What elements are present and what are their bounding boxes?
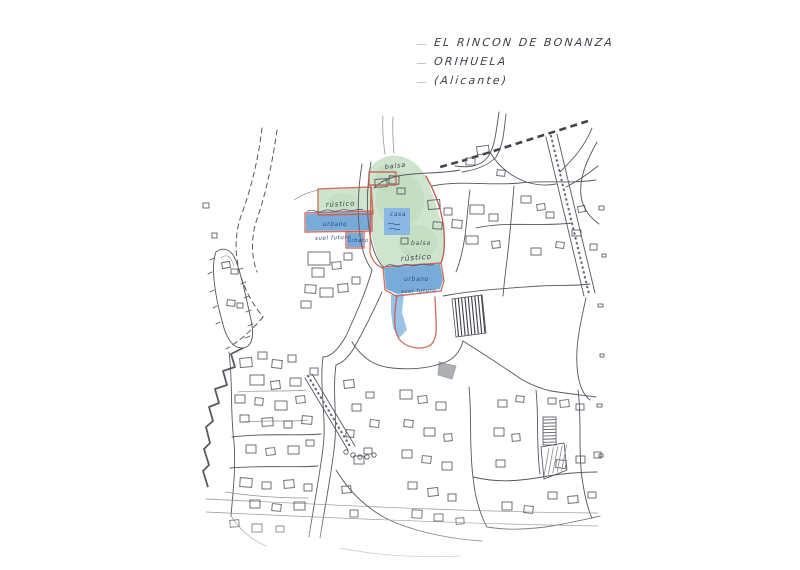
label-urbano-box: urbano (348, 238, 369, 244)
building-outline (272, 360, 283, 369)
building-outline (537, 204, 546, 211)
building-outline (599, 206, 604, 210)
building-outline (301, 301, 311, 308)
building-outline (275, 401, 287, 410)
label-suelo-futuro-left: suel futuro (315, 235, 352, 242)
building-outline (344, 253, 352, 260)
building-outline (548, 492, 557, 499)
hatch-line (478, 296, 482, 334)
dashed-track (236, 128, 263, 317)
building-outline (288, 355, 296, 362)
building-outline (546, 212, 554, 218)
building-outline (452, 220, 463, 229)
building-outline (548, 398, 556, 404)
building-outline (434, 514, 443, 521)
building-outline (288, 446, 299, 454)
building-outline (212, 233, 217, 238)
building-outline (235, 395, 245, 403)
map-canvas: balsa rústico urbano suel futuro urbano … (0, 0, 800, 570)
building-outline (412, 510, 422, 519)
building-outline (521, 196, 531, 203)
building-outline (560, 400, 570, 408)
label-suelo-futuro-lower: suel futuro (401, 288, 436, 295)
building-outline (246, 445, 256, 453)
building-outline (272, 504, 282, 512)
building-outline (422, 456, 432, 464)
building-outline (296, 396, 306, 404)
building-outline (597, 404, 602, 407)
building-outline (250, 375, 264, 385)
building-outline (255, 398, 263, 406)
label-balsa-small: balsa (411, 240, 431, 247)
west-boundary-stepped (203, 348, 243, 487)
building-outline (588, 492, 596, 498)
building-outline (424, 428, 435, 436)
building-outline (266, 448, 276, 456)
hatch-line (468, 297, 472, 335)
building-outline (489, 214, 498, 221)
ladder-rungs (544, 420, 556, 443)
building-outline (556, 242, 565, 249)
hatch-line (548, 447, 553, 474)
building-outline (442, 462, 452, 470)
building-outline (598, 304, 603, 307)
building-outline (352, 277, 360, 284)
building-outline (436, 402, 446, 410)
hatch-line (462, 298, 466, 336)
label-rustico-upper: rústico (326, 199, 356, 209)
building-outline (366, 392, 374, 398)
dot-circle (372, 453, 376, 457)
building-outline (312, 268, 324, 277)
building-outline (444, 208, 452, 215)
building-outline (344, 380, 355, 389)
hatch-line (475, 296, 479, 334)
building-outline (600, 354, 604, 357)
building-outline (466, 236, 478, 244)
building-outline (568, 496, 578, 504)
building-outline (262, 418, 273, 427)
scanned-plan-page: EL RINCON DE BONANZA ORIHUELA (Alicante) (0, 0, 800, 570)
stippled-canal-ne (546, 134, 595, 296)
label-urbano-left: urbano (323, 222, 347, 228)
dot-circle (358, 455, 362, 459)
hatch-line (544, 448, 549, 476)
building-outline (408, 482, 417, 489)
building-outline (494, 428, 504, 436)
building-outline (237, 303, 243, 308)
building-outline (370, 420, 380, 428)
label-urbano-lower: urbano (404, 276, 429, 283)
building-outline (203, 203, 209, 208)
building-outline (590, 244, 597, 250)
stippled-lane-sw (305, 374, 355, 450)
building-outline (400, 390, 412, 399)
warehouse-hatch-lines (455, 295, 485, 336)
building-outline (240, 358, 253, 368)
building-outline (310, 368, 318, 375)
building-outline (271, 381, 281, 390)
building-outline (290, 378, 301, 386)
hatch-line (465, 297, 469, 335)
canal-strip (391, 294, 407, 338)
building-outline (404, 420, 413, 428)
building-outline (227, 300, 235, 307)
building-outline (402, 450, 412, 458)
building-outline (448, 494, 456, 501)
building-outline (305, 285, 316, 294)
building-outline (284, 421, 292, 428)
building-outline (602, 254, 606, 257)
municipal-boundary-dashed (462, 121, 588, 161)
hatch-line (458, 298, 462, 336)
dot-circle (351, 453, 355, 457)
dark-shed (438, 362, 456, 379)
building-outline (222, 261, 231, 268)
building-outline (240, 478, 252, 488)
hatch-line (472, 296, 476, 334)
building-outline (456, 518, 464, 525)
building-outline (338, 284, 349, 293)
building-outline (516, 396, 524, 403)
ladder-building (543, 417, 556, 445)
building-outline (276, 526, 284, 532)
building-outline (306, 440, 314, 446)
building-outline (496, 460, 505, 467)
building-outline (556, 460, 567, 469)
building-outline (470, 205, 484, 214)
building-outline (320, 288, 333, 297)
building-outline (262, 482, 271, 489)
dot-circle (344, 450, 348, 454)
building-outline (498, 400, 507, 407)
building-outline (332, 262, 342, 270)
building-outline (428, 488, 439, 497)
building-outline (352, 404, 361, 411)
building-outline (308, 252, 330, 265)
building-outline (240, 415, 249, 422)
dotted-row (344, 450, 376, 459)
label-casa: casa (390, 211, 406, 218)
building-outline (576, 404, 584, 410)
enclosure-outline (208, 249, 253, 348)
building-outline (231, 269, 238, 274)
building-outline (252, 524, 262, 532)
building-outline (350, 510, 358, 517)
building-outline (418, 396, 428, 404)
building-outline (497, 170, 505, 177)
dot-circle (365, 455, 369, 459)
building-outline (531, 248, 541, 255)
building-outline (444, 434, 452, 442)
building-outline (502, 502, 512, 510)
building-outline (304, 484, 312, 491)
building-outline (284, 480, 295, 489)
building-outline (364, 448, 372, 454)
building-outline (492, 241, 501, 249)
building-outline (512, 434, 520, 442)
building-outline (258, 352, 267, 359)
